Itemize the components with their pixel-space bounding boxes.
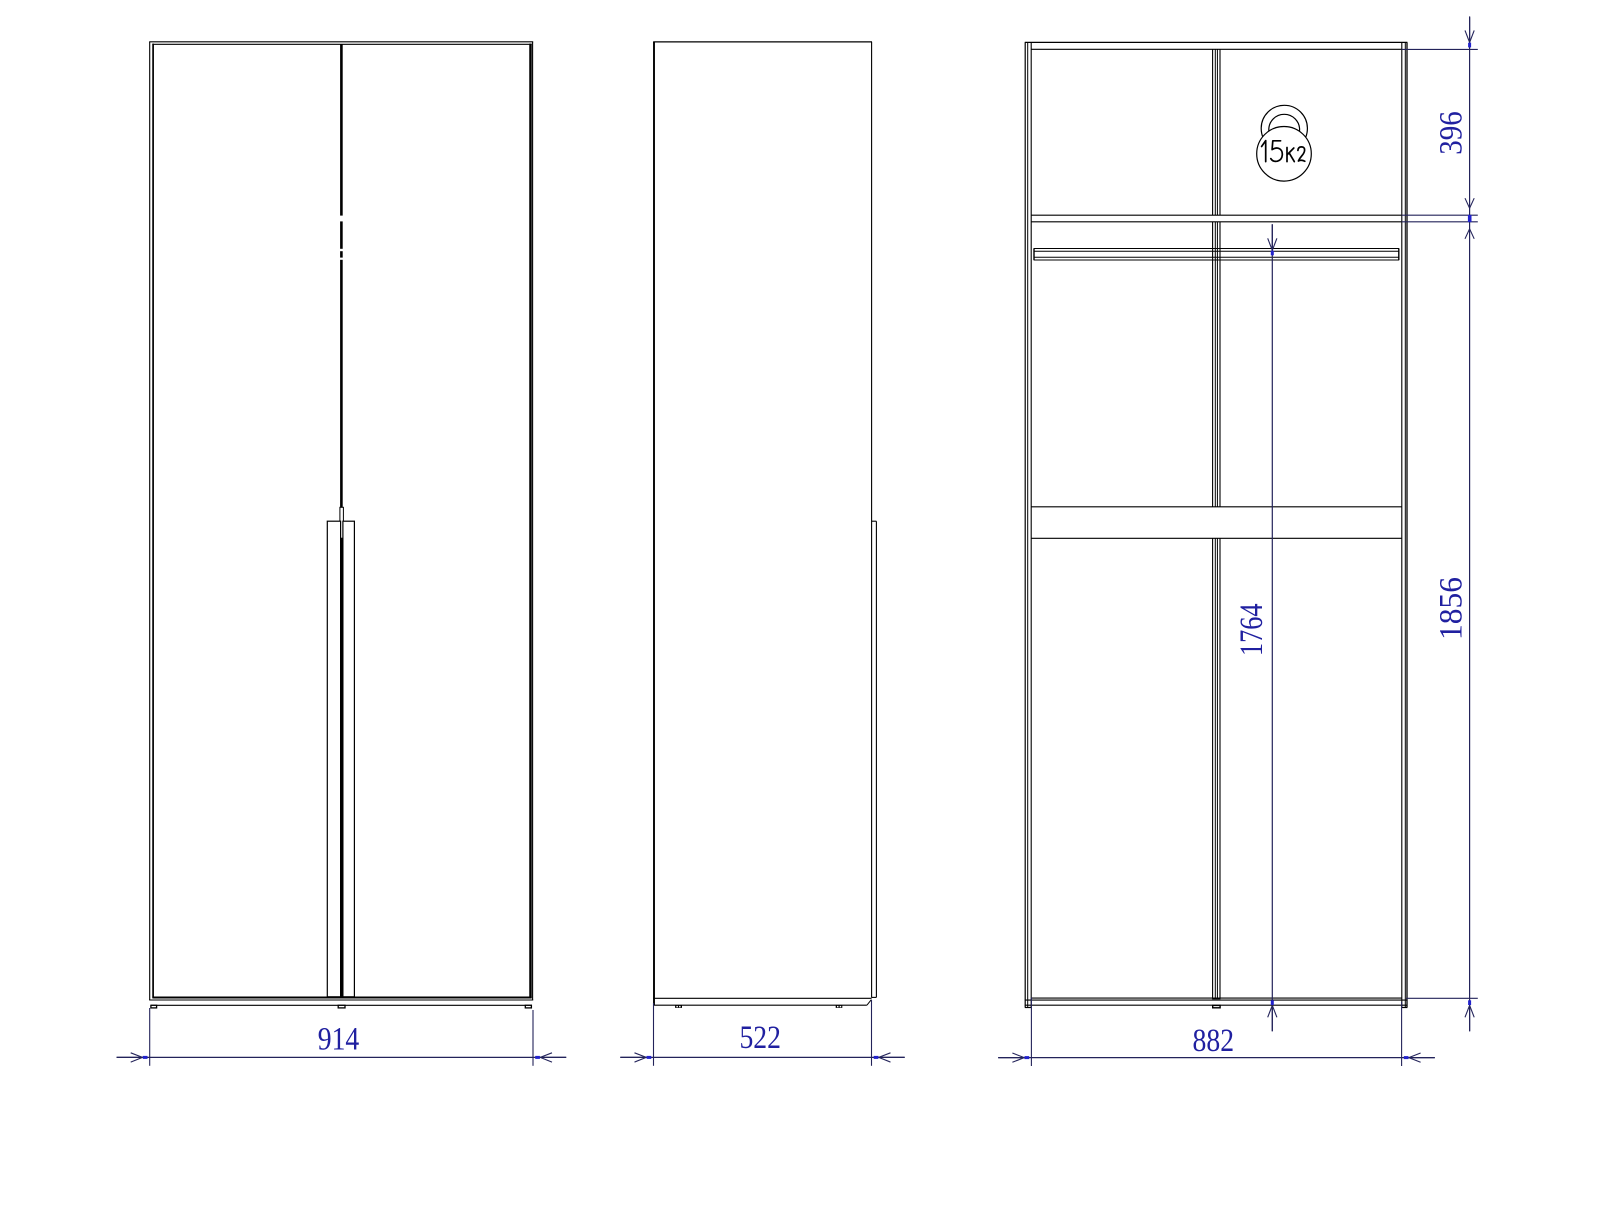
svg-text:914: 914 [318, 1022, 360, 1058]
svg-text:1764: 1764 [1234, 603, 1270, 656]
svg-text:882: 882 [1193, 1023, 1235, 1059]
svg-text:396: 396 [1433, 111, 1469, 155]
svg-text:522: 522 [739, 1020, 781, 1056]
svg-text:1856: 1856 [1434, 577, 1470, 640]
